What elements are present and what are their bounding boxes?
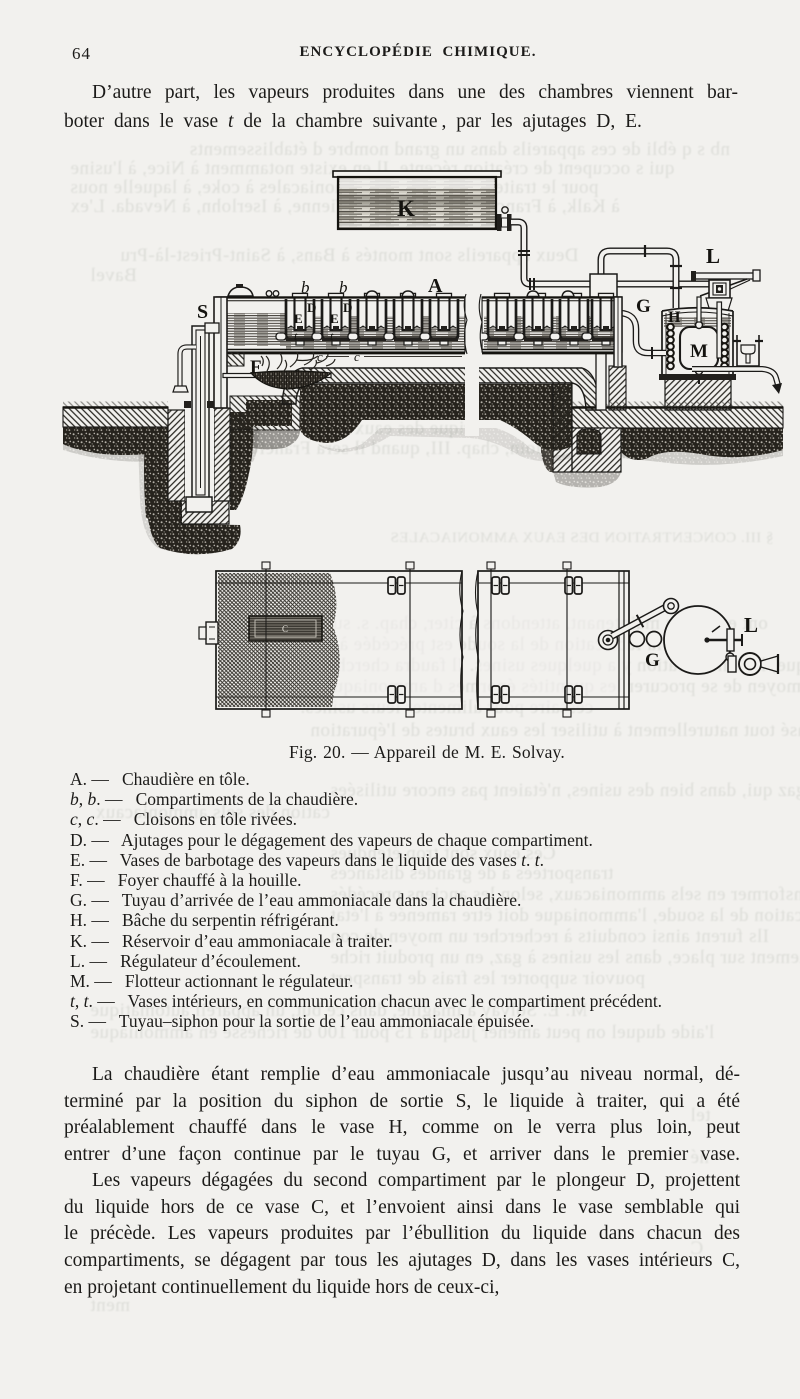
svg-text:c: c bbox=[354, 349, 360, 364]
svg-text:S: S bbox=[197, 301, 208, 323]
svg-text:b: b bbox=[301, 278, 310, 297]
svg-text:K: K bbox=[397, 196, 415, 221]
svg-text:M: M bbox=[690, 341, 708, 362]
svg-text:E: E bbox=[330, 311, 339, 326]
svg-text:G: G bbox=[645, 650, 660, 671]
svg-text:D: D bbox=[343, 300, 352, 315]
svg-text:F: F bbox=[250, 357, 262, 378]
svg-text:E: E bbox=[294, 311, 303, 326]
svg-text:L: L bbox=[744, 613, 758, 637]
svg-text:c: c bbox=[317, 349, 323, 364]
svg-text:C: C bbox=[282, 624, 288, 634]
svg-text:H: H bbox=[668, 309, 681, 326]
svg-text:b: b bbox=[339, 278, 348, 297]
svg-text:L: L bbox=[706, 244, 720, 268]
svg-text:D: D bbox=[307, 300, 316, 315]
svg-text:A: A bbox=[428, 275, 443, 297]
svg-text:G: G bbox=[636, 296, 651, 317]
